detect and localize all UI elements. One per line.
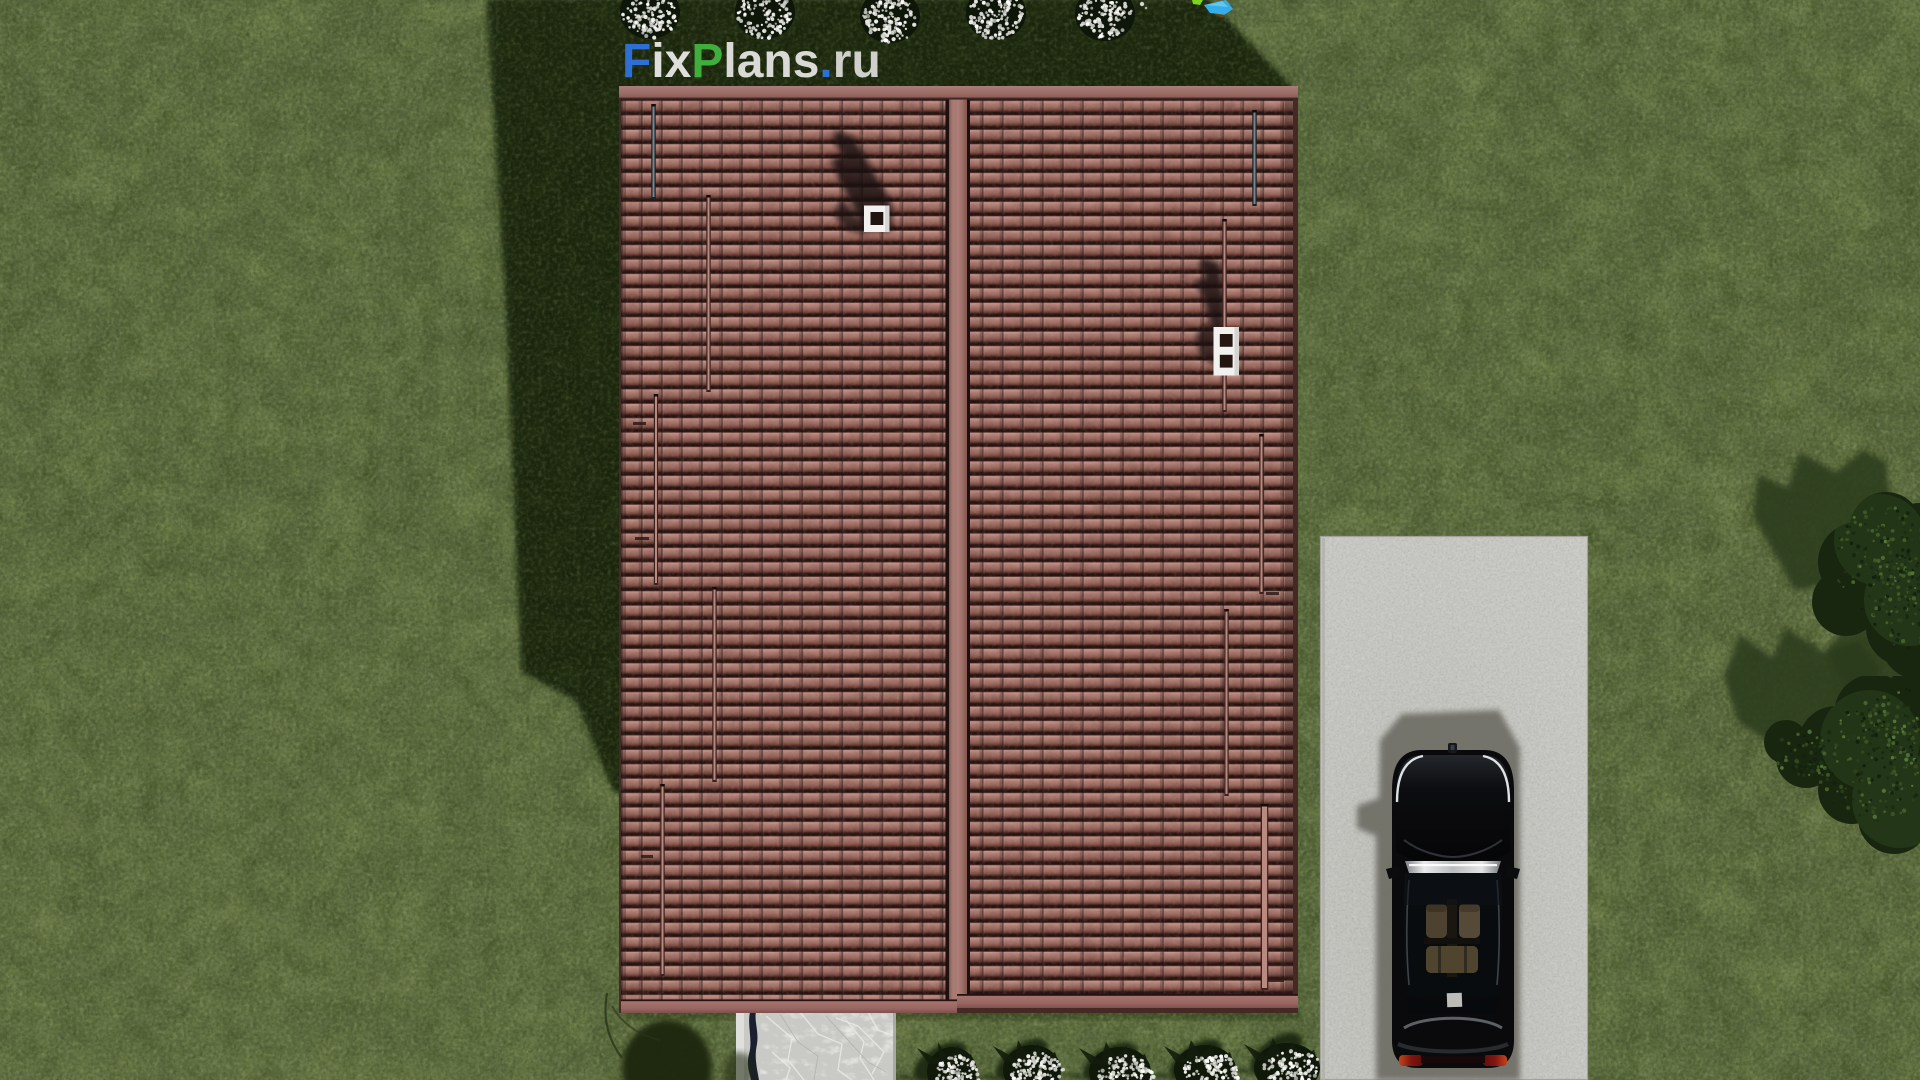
svg-text:FixPlans.ru: FixPlans.ru — [622, 35, 881, 88]
